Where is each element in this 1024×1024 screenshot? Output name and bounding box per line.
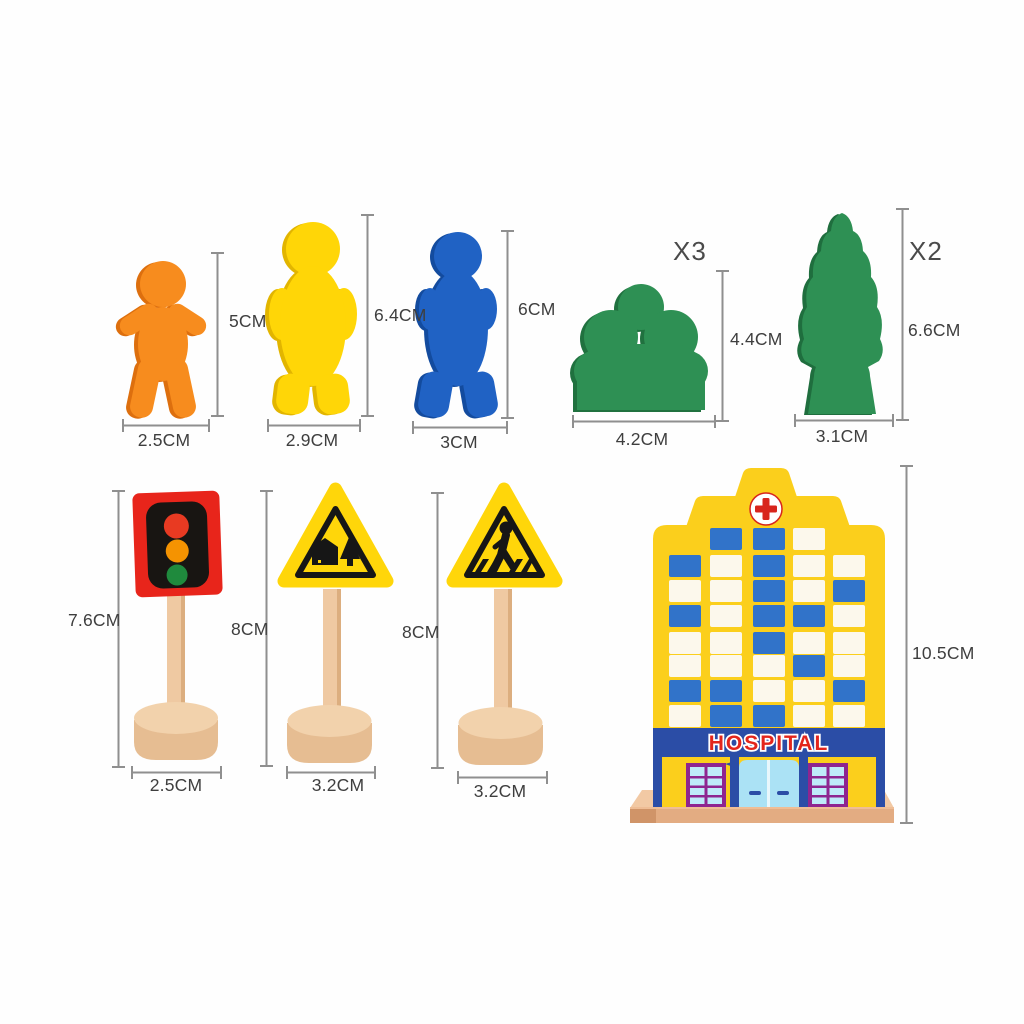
village-warning-sign [276,481,394,769]
count-label-pine: X2 [909,238,943,264]
dimension-line-orange-height [211,252,224,417]
yellow-figure [266,218,360,416]
left-corner-pillar [653,757,662,808]
width-label-blue: 3CM [440,433,478,452]
product-dimension-diagram: 5CM 6.4CM 6CM 4.4CM 6.6CM X3 X2 2.5CM 2.… [0,0,1024,1024]
width-label-orange: 2.5CM [138,431,191,450]
dimension-line-bush-height [716,270,729,422]
height-label-orange: 5CM [229,312,267,331]
dimension-line-bush-width [572,415,716,428]
wood-base [287,705,372,763]
width-label-yellow: 2.9CM [286,431,339,450]
dimension-line-yellow-height [361,214,374,417]
width-label-bush: 4.2CM [616,430,669,449]
door-handle [777,791,789,795]
building-body: HOSPITAL [653,468,885,808]
double-doors [739,760,799,808]
right-corner-pillar [876,757,885,808]
height-label-yellow: 6.4CM [374,306,427,325]
sign-face [284,489,387,581]
dimension-line-pine-width [794,414,894,427]
dimension-line-pine-height [896,208,909,421]
bush-tree [571,274,711,412]
height-label-hospital: 10.5CM [912,644,974,663]
door-handle [749,791,761,795]
door-right-pillar [799,757,808,808]
height-label-pine: 6.6CM [908,321,961,340]
pine-tree [790,209,894,418]
red-cross-icon [750,493,782,525]
traffic-light-head [132,490,223,597]
left-ground-window [686,763,726,808]
sign-face [453,489,556,581]
width-label-traffic-light: 2.5CM [150,776,203,795]
height-label-village-sign: 8CM [231,620,269,639]
wood-base [458,707,543,765]
count-label-bush: X3 [673,238,707,264]
traffic-light [130,486,222,766]
width-label-village-sign: 3.2CM [312,776,365,795]
height-label-blue: 6CM [518,300,556,319]
wood-pole [494,589,512,715]
right-ground-window [808,763,848,808]
platform-front [630,807,894,823]
height-label-bush: 4.4CM [730,330,783,349]
hospital-sign-text: HOSPITAL [709,732,830,755]
pedestrian-crossing-sign [443,481,565,771]
wood-base [134,702,218,760]
wood-pole [167,592,185,714]
width-label-pine: 3.1CM [816,427,869,446]
dimension-line-blue-height [501,230,514,419]
orange-figure [118,256,208,420]
hospital-building: HOSPITAL [622,464,902,826]
height-label-traffic-light: 7.6CM [68,611,121,630]
width-label-crossing-sign: 3.2CM [474,782,527,801]
height-label-crossing-sign: 8CM [402,623,440,642]
wood-pole [323,589,341,713]
dimension-line-hospital-height [900,465,913,824]
